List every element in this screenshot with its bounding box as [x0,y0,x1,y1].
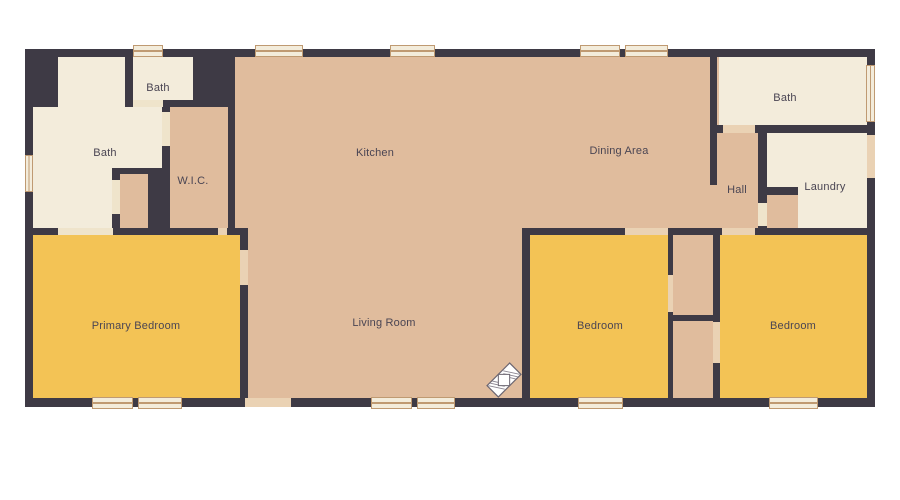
window-living-2 [417,397,455,409]
door-bedroom-middle [625,228,668,235]
label-kitchen: Kitchen [356,147,394,159]
label-hall: Hall [727,184,747,196]
window-primary-2 [138,397,182,409]
window-dining-2 [625,45,668,57]
label-bath-right: Bath [773,92,796,104]
door-hall-bath [723,125,755,133]
door-bath-closet [112,180,120,214]
window-primary-1 [92,397,133,409]
room-bedroom-right [720,235,867,398]
hall-closet [767,195,798,228]
compass-icon [484,360,524,400]
wall-bedrooms-top [522,228,867,235]
wall-kitchen-left [228,100,235,235]
door-wic-living [218,228,227,235]
floor-plan: Bath Bath W.I.C. Kitchen Dining Area Bat… [0,0,900,500]
room-bath-right [719,57,867,125]
window-kitchen-1 [255,45,303,57]
room-bath-upper-left [58,57,126,107]
wall-dining-right [710,57,717,185]
closet-lower [673,321,713,398]
label-dining-area: Dining Area [589,145,648,157]
room-kitchen [235,57,710,228]
window-dining-1 [580,45,620,57]
wall-closet-divider [668,315,720,321]
window-bedroom-middle [578,397,623,409]
window-bath-right [866,65,875,122]
label-wic: W.I.C. [177,175,208,187]
door-laundry [758,203,767,226]
label-bedroom-middle: Bedroom [577,320,623,332]
door-wic [162,112,170,146]
closet-upper [673,235,713,315]
door-bath-small [133,100,163,107]
wall-top-block [193,49,235,107]
door-primary-living [240,250,248,285]
wall-corner-block [25,49,58,107]
window-bedroom-right [769,397,818,409]
room-laundry-lower [798,187,867,228]
room-wic [170,103,228,230]
label-bedroom-right: Bedroom [770,320,816,332]
door-exterior-right [867,135,875,178]
label-bath-small: Bath [146,82,169,94]
wall-hall-closet-top [758,187,798,195]
label-laundry: Laundry [804,181,845,193]
label-primary-bedroom: Primary Bedroom [92,320,181,332]
room-bath-left-lower [33,168,116,230]
label-bath-left: Bath [93,147,116,159]
bath-closet [124,174,148,230]
room-bedroom-middle [530,235,668,398]
room-primary-bedroom [33,235,240,398]
door-living-patio [245,398,291,407]
window-living-1 [371,397,412,409]
door-primary-bath [58,228,113,235]
door-closet-upper [668,275,673,312]
window-bath-small [133,45,163,57]
wall-bath-closet-right [148,174,162,235]
room-laundry-upper [767,133,867,187]
door-bedroom-right [722,228,755,235]
room-hall [717,133,758,228]
window-bath-left [25,155,33,192]
label-living-room: Living Room [352,317,415,329]
door-closet-lower [713,322,720,363]
window-kitchen-2 [390,45,435,57]
